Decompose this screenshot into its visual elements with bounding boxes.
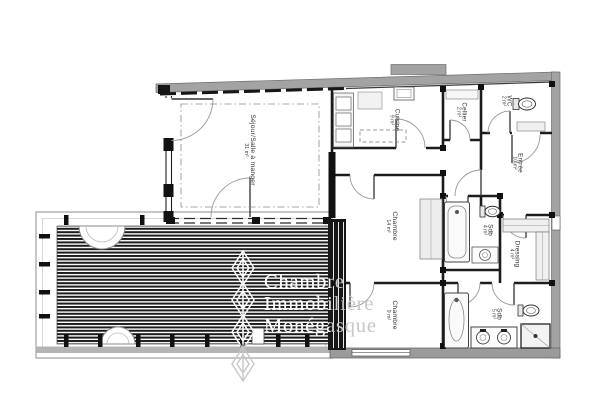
terrace-bottom-band [36,347,330,354]
sdb1-fixtures [445,202,501,263]
sink-icon [477,331,490,344]
toilet-icon [485,206,500,216]
right-wall-vent [552,216,560,230]
floor-plan-drawing [0,0,600,415]
bedroom1-fixtures [420,199,442,259]
kitchen-fixtures [334,87,415,147]
sdb2-fixtures [445,293,551,348]
door-arc [172,99,214,141]
dressing-fixtures [503,219,549,280]
terrace-step [252,328,264,344]
wall-chunk [329,152,336,218]
floor-plan-page: Séjour/Salle à manger 31 m² Cuisine 9 m²… [0,0,600,415]
terrace [36,212,332,358]
cellier-fixtures [446,90,478,99]
toilet-icon [519,98,536,110]
terrace-door-arc [211,178,250,217]
living-room-window-walls [162,96,331,224]
wc-fixtures [513,98,545,131]
toilet-icon [523,305,539,316]
sink-icon [498,331,511,344]
